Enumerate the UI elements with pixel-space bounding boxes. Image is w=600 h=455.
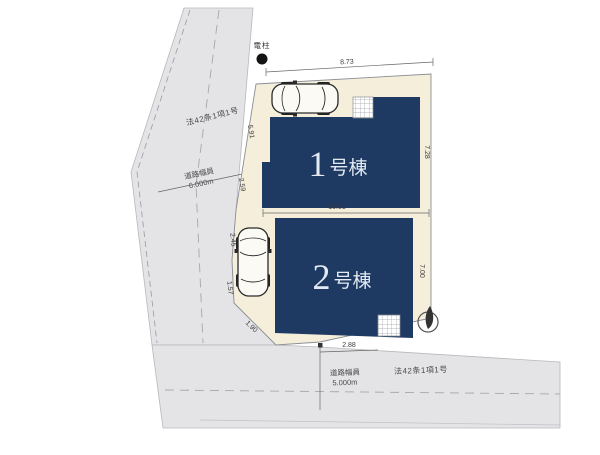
car-1-mirror: [293, 81, 297, 84]
car-1-mirror: [293, 114, 297, 117]
building-2: 2号棟: [275, 218, 413, 338]
road-bottom-classification-label: 法42条1項1号: [394, 364, 448, 376]
dim-corner-marker: [318, 343, 323, 348]
building-1-number: 1: [308, 144, 326, 184]
car-top-view-icon-1: [272, 81, 338, 117]
dim-label-between: 10.01: [328, 204, 346, 211]
building-1-suffix: 号棟: [329, 157, 367, 179]
car-top-view-icon-2: [235, 228, 272, 296]
dim-label-left-lower: 2.59: [237, 177, 246, 192]
building-2-suffix: 号棟: [333, 270, 371, 292]
site-plan-canvas: 法42条1項1号 道路幅員 6.000m 道路幅員 5.000m 法42条1項1…: [0, 0, 600, 455]
car-2-mirror: [269, 249, 272, 253]
dim-label-b2-left-lower: 1.57: [225, 281, 233, 295]
utility-pole-icon: 電柱: [254, 40, 271, 65]
road-bottom-width-label: 道路幅員: [330, 366, 361, 377]
building-2-porch-hatch: [378, 315, 400, 336]
dim-label-top: 8.73: [340, 59, 354, 67]
utility-pole-dot: [257, 54, 268, 65]
building-2-number: 2: [312, 257, 330, 297]
site-plan-page: 法42条1項1号 道路幅員 6.000m 道路幅員 5.000m 法42条1項1…: [0, 0, 600, 455]
utility-pole-label: 電柱: [254, 40, 271, 50]
car-2-mirror: [235, 249, 238, 253]
dim-label-bottom-offset: 2.88: [342, 342, 356, 349]
dim-label-b1-right: 7.28: [423, 145, 430, 159]
building-1-porch-hatch: [353, 97, 373, 118]
dim-label-b2-left-upper: 2.45: [228, 233, 236, 247]
road-bottom: 道路幅員 5.000m 法42条1項1号: [152, 345, 560, 428]
road-bottom-width-value: 5.000m: [332, 378, 357, 388]
dim-label-b2-right: 7.00: [418, 264, 425, 278]
